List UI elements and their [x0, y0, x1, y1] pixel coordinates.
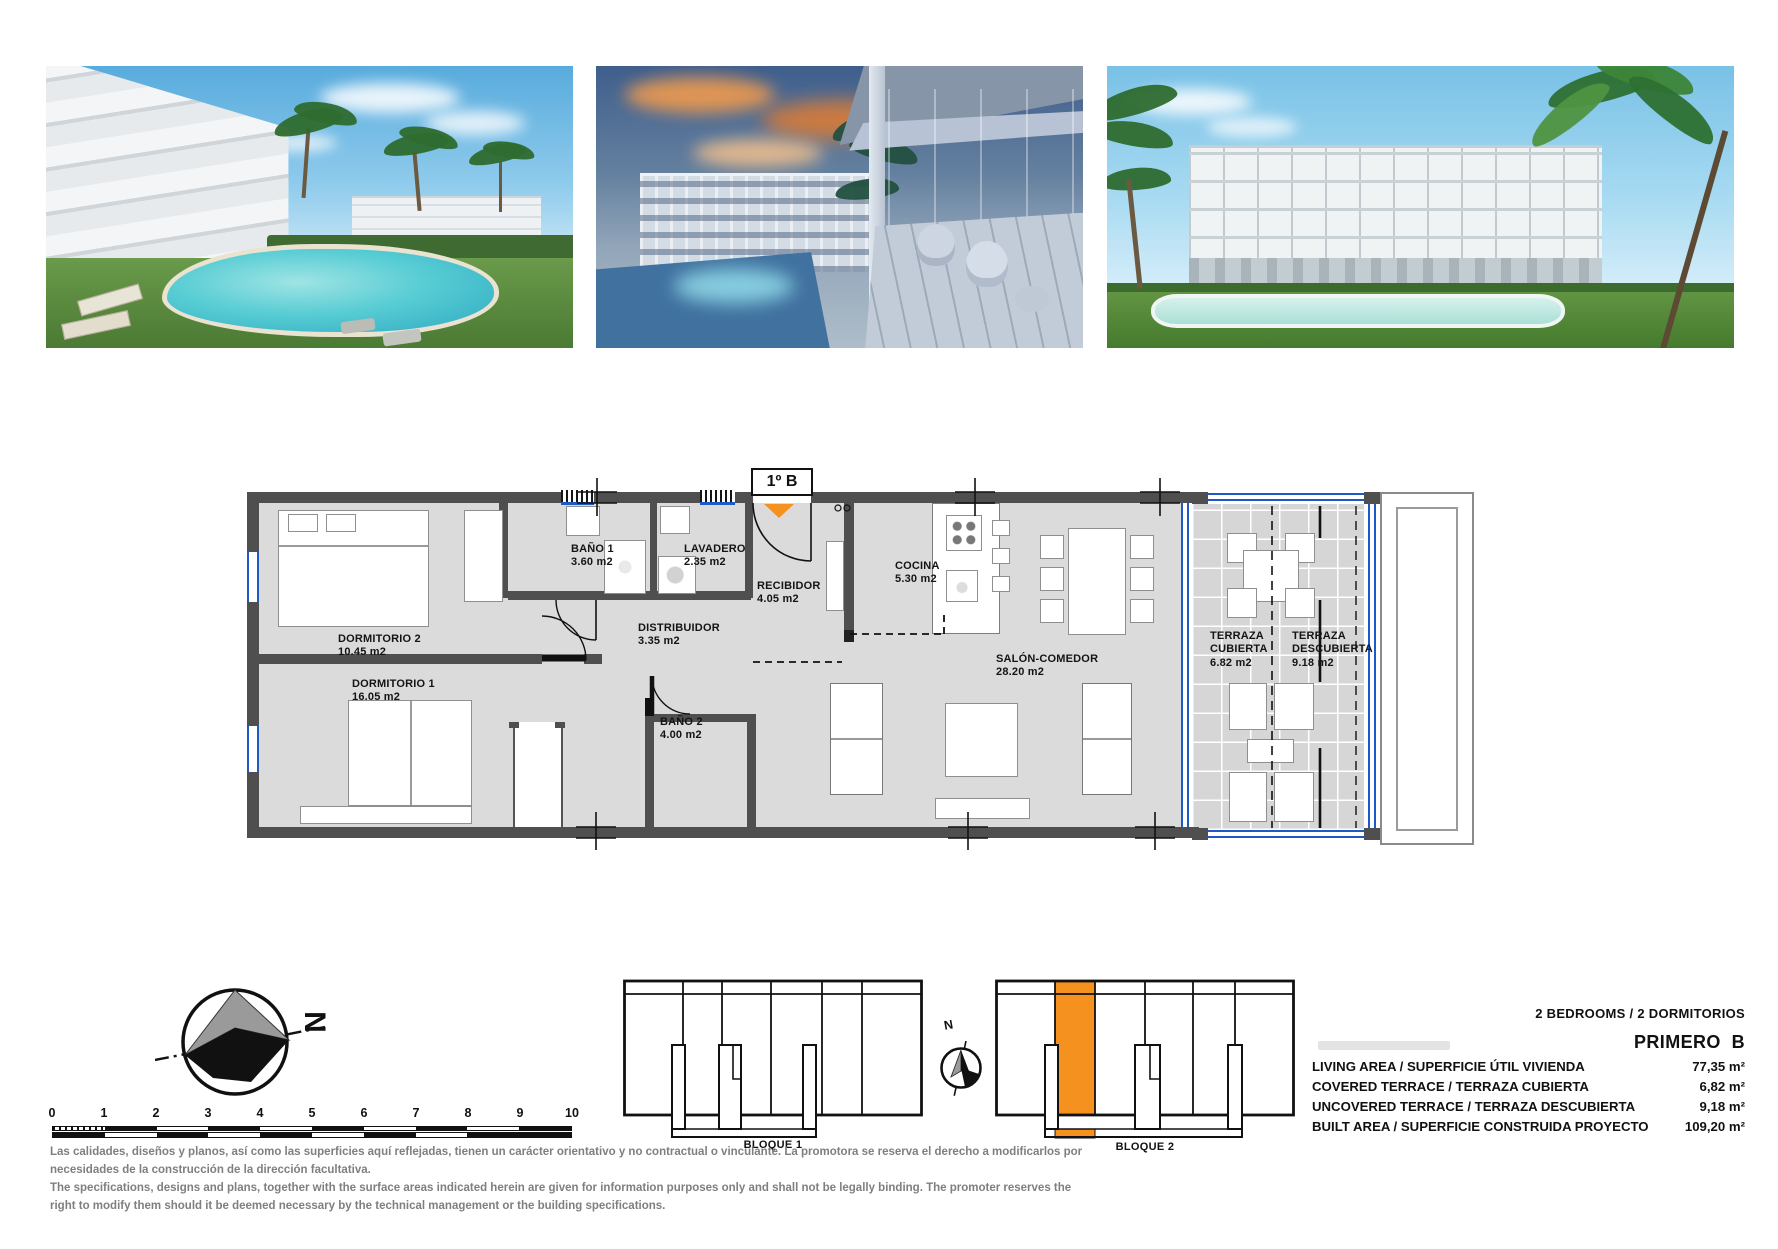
lounge-chair [1274, 772, 1314, 822]
room-name: DORMITORIO 2 [338, 633, 421, 645]
disclaimer-line: right to modify them should it be deemed… [50, 1200, 1150, 1218]
scale-tick: 8 [465, 1106, 472, 1120]
shelf [660, 506, 690, 534]
scale-tick: 5 [309, 1106, 316, 1120]
disclaimer-line: Las calidades, diseños y planos, así com… [50, 1146, 1150, 1164]
block1-diagram [623, 979, 923, 1143]
surface-label: BUILT AREA / SUPERFICIE CONSTRUIDA PROYE… [1312, 1119, 1649, 1139]
palm-tree-icon [499, 162, 502, 212]
render-photo-sunset-terrace [596, 66, 1083, 348]
block2-diagram [995, 979, 1297, 1143]
column-accent [645, 698, 654, 716]
terrace-glass-top [1206, 493, 1366, 501]
closet-d1 [513, 722, 563, 827]
sofa-line [831, 738, 882, 740]
surface-row: COVERED TERRACE / TERRAZA CUBIERTA 6,82 … [1312, 1079, 1745, 1099]
armchair [966, 241, 1008, 287]
terrace-post [1192, 492, 1208, 504]
scale-tick: 10 [565, 1106, 579, 1120]
room-area: 28.20 m2 [996, 666, 1044, 678]
room-label: BAÑO 13.60 m2 [571, 543, 614, 570]
pillow [326, 514, 356, 532]
kitchen-sink [946, 570, 978, 602]
site-compass-icon [936, 1041, 986, 1097]
room-name: BAÑO 2 [660, 716, 703, 728]
column-accent [844, 630, 854, 642]
room-area: 4.00 m2 [660, 729, 702, 741]
room-label: DORMITORIO 210.45 m2 [338, 633, 421, 660]
wardrobe [464, 510, 503, 602]
hall-cabinet [826, 541, 844, 611]
wall-bano2-right [747, 714, 756, 827]
coffee-table [945, 703, 1018, 777]
surface-row: BUILT AREA / SUPERFICIE CONSTRUIDA PROYE… [1312, 1119, 1745, 1139]
pergola-inner-outline [1396, 507, 1458, 831]
room-name: COCINA [895, 560, 940, 572]
surface-value: 6,82 m² [1700, 1079, 1745, 1099]
tv-cabinet [935, 798, 1030, 819]
chair [1040, 599, 1064, 623]
room-name: TERRAZA DESCUBIERTA [1292, 630, 1373, 655]
closet-cap [509, 722, 519, 728]
unit-name: PRIMERO B [1634, 1032, 1745, 1053]
room-area: 5.30 m2 [895, 573, 937, 585]
wall-bano2-left [645, 714, 654, 827]
dining-table [1068, 528, 1126, 635]
pillow [288, 514, 318, 532]
scale-bar-row [52, 1126, 572, 1131]
lounge-chair [1274, 683, 1314, 730]
pool [1151, 294, 1565, 328]
wall-dorm-divider-stub [584, 654, 602, 664]
room-label: COCINA5.30 m2 [895, 560, 940, 587]
brochure-page: 1º B DORMITORIO 210.45 m2 DORMITORIO 116… [0, 0, 1778, 1249]
hob [946, 515, 982, 551]
scale-tick: 7 [413, 1106, 420, 1120]
bed-line [410, 701, 412, 805]
lounge-chair [1229, 772, 1267, 822]
ghost-watermark [1318, 1041, 1450, 1050]
terrace-post [1364, 492, 1380, 504]
unit-label-box: 1º B [751, 468, 813, 496]
scale-tick: 0 [49, 1106, 56, 1120]
room-label: TERRAZA CUBIERTA6.82 m2 [1210, 630, 1276, 670]
chair [1130, 567, 1154, 591]
terrace-post [1364, 828, 1380, 840]
closet-cap [555, 722, 565, 728]
room-name: LAVADERO [684, 543, 746, 555]
room-area: 4.05 m2 [757, 593, 799, 605]
room-area: 3.60 m2 [571, 556, 613, 568]
surface-value: 9,18 m² [1700, 1099, 1745, 1119]
bar-stool [992, 548, 1010, 564]
chair [1130, 535, 1154, 559]
dresser [300, 806, 472, 824]
window-left-1 [247, 552, 259, 602]
room-label: RECIBIDOR4.05 m2 [757, 580, 821, 607]
surface-table: LIVING AREA / SUPERFICIE ÚTIL VIVIENDA 7… [1312, 1059, 1745, 1139]
room-area: 6.82 m2 [1210, 657, 1252, 669]
chair [1040, 567, 1064, 591]
room-name: SALÓN-COMEDOR [996, 653, 1098, 665]
unit-label: 1º B [767, 473, 798, 491]
wall-recibidor-cocina [844, 503, 854, 640]
scale-tick: 6 [361, 1106, 368, 1120]
room-name: BAÑO 1 [571, 543, 614, 555]
vent-strip [700, 490, 735, 505]
surface-label: LIVING AREA / SUPERFICIE ÚTIL VIVIENDA [1312, 1059, 1585, 1079]
pouf [1015, 286, 1049, 312]
pool [162, 244, 499, 337]
render-photo-building-lawn [1107, 66, 1734, 348]
room-area: 10.45 m2 [338, 646, 386, 658]
chair [1130, 599, 1154, 623]
room-label: DISTRIBUIDOR3.35 m2 [638, 622, 720, 649]
room-area: 16.05 m2 [352, 691, 400, 703]
pool-glow [674, 269, 794, 303]
room-name: TERRAZA CUBIERTA [1210, 630, 1268, 655]
scale-bar-row [52, 1132, 572, 1138]
compass-north-letter: N [297, 1011, 331, 1033]
side-table [1247, 739, 1294, 763]
scale-tick: 2 [153, 1106, 160, 1120]
north-compass-icon [155, 955, 325, 1130]
disclaimer: Las calidades, diseños y planos, así com… [50, 1146, 1150, 1218]
bar-stool [992, 520, 1010, 536]
bed-line [279, 545, 428, 547]
lounge-chair [1229, 683, 1267, 730]
room-name: DORMITORIO 1 [352, 678, 435, 690]
salon-terrace-glass [1181, 503, 1189, 827]
room-label: BAÑO 24.00 m2 [660, 716, 703, 743]
sink [566, 506, 600, 536]
terrace-glass-bottom [1192, 830, 1366, 838]
wall-bottom [247, 827, 1199, 838]
room-label: DORMITORIO 116.05 m2 [352, 678, 435, 705]
room-area: 2.35 m2 [684, 556, 726, 568]
surface-label: COVERED TERRACE / TERRAZA CUBIERTA [1312, 1079, 1589, 1099]
render-photo-pool-garden [46, 66, 573, 348]
surface-value: 77,35 m² [1692, 1059, 1745, 1079]
vent-strip [561, 490, 594, 505]
scale-tick: 3 [205, 1106, 212, 1120]
room-area: 3.35 m2 [638, 635, 680, 647]
room-label: SALÓN-COMEDOR28.20 m2 [996, 653, 1098, 680]
surface-value: 109,20 m² [1685, 1119, 1745, 1139]
disclaimer-line: The specifications, designs and plans, t… [50, 1182, 1150, 1200]
scale-tick: 1 [101, 1106, 108, 1120]
wall-left [247, 492, 259, 838]
disclaimer-line: necesidades de la construcción de la dir… [50, 1164, 1150, 1182]
surface-label: UNCOVERED TERRACE / TERRAZA DESCUBIERTA [1312, 1099, 1635, 1119]
room-label: TERRAZA DESCUBIERTA9.18 m2 [1292, 630, 1372, 670]
terrace-chair [1285, 588, 1315, 618]
wall-bano1-lavadero [650, 503, 657, 591]
scale-tick: 9 [517, 1106, 524, 1120]
room-name: RECIBIDOR [757, 580, 821, 592]
room-name: DISTRIBUIDOR [638, 622, 720, 634]
room-area: 9.18 m2 [1292, 657, 1334, 669]
scale-tick: 4 [257, 1106, 264, 1120]
entry-marker-icon [764, 504, 794, 518]
room-label: LAVADERO2.35 m2 [684, 543, 746, 570]
cloud [1207, 117, 1297, 137]
surface-row: LIVING AREA / SUPERFICIE ÚTIL VIVIENDA 7… [1312, 1059, 1745, 1079]
terrace-chair [1227, 588, 1257, 618]
surface-row: UNCOVERED TERRACE / TERRAZA DESCUBIERTA … [1312, 1099, 1745, 1119]
chair [1040, 535, 1064, 559]
terrace-post [1192, 828, 1208, 840]
window-left-2 [247, 726, 259, 772]
unit-type-line: 2 BEDROOMS / 2 DORMITORIOS [1535, 1006, 1745, 1021]
armchair [917, 224, 955, 266]
bar-stool [992, 576, 1010, 592]
sofa-line [1083, 738, 1131, 740]
wall-lavadero-recibidor [745, 503, 753, 598]
site-compass-north-letter: N [943, 1017, 954, 1032]
